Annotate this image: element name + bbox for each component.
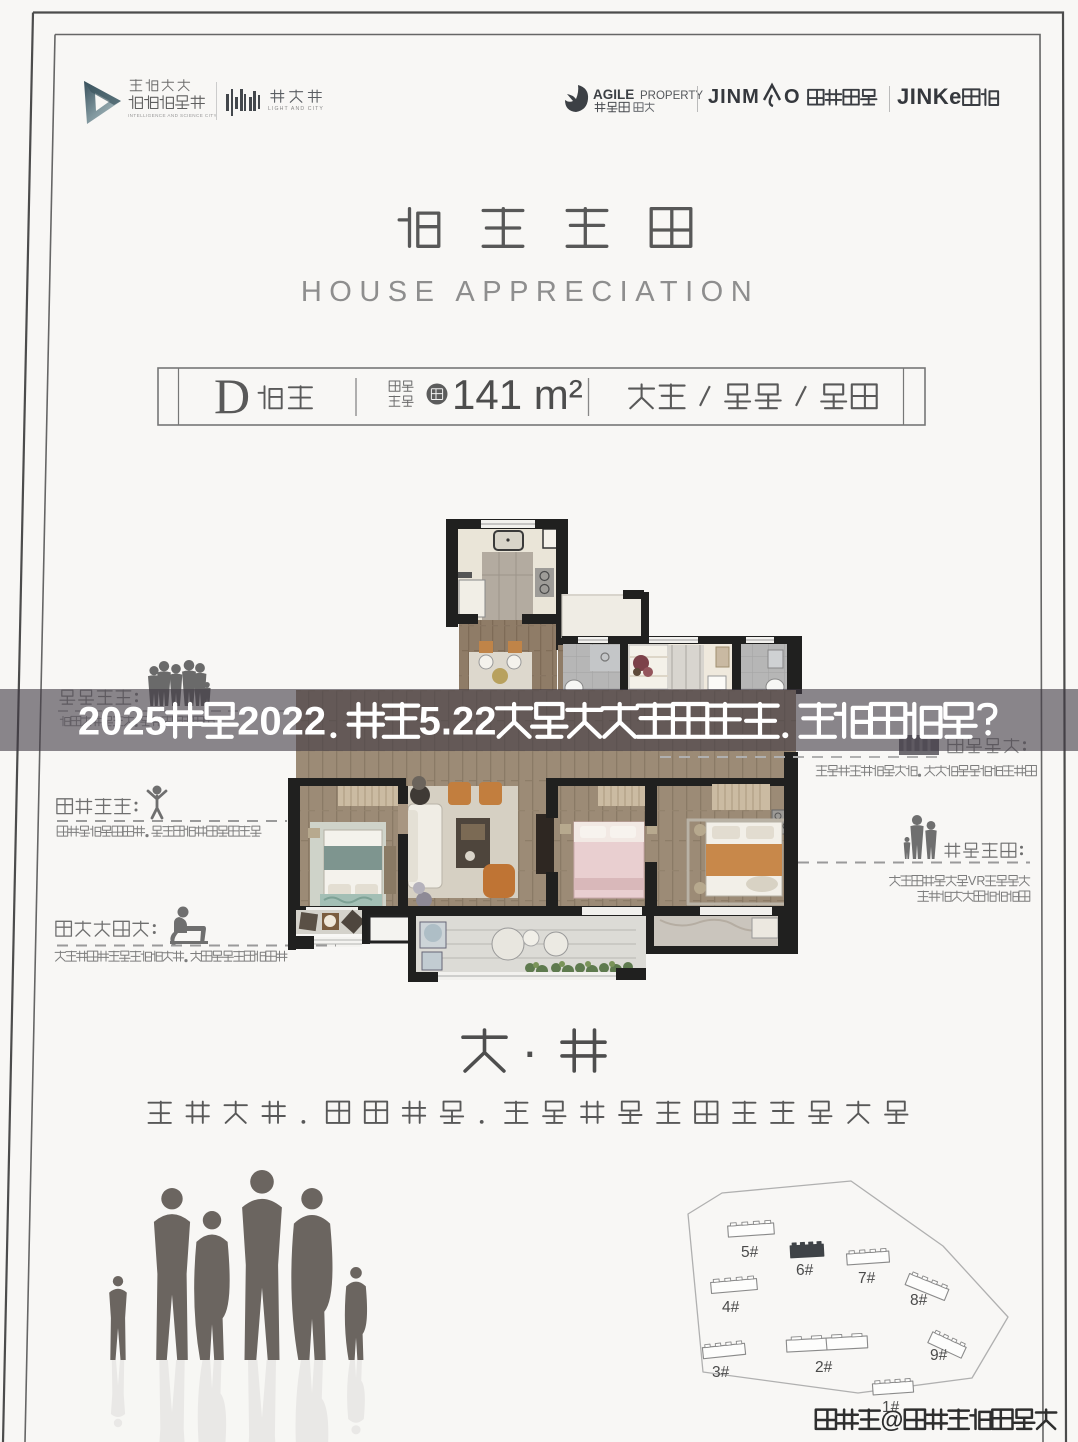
svg-text:141 m²: 141 m²	[452, 371, 583, 418]
svg-text:2025: 2025	[78, 699, 167, 743]
svg-text:D: D	[214, 368, 250, 424]
svg-text:PROPERTY: PROPERTY	[640, 90, 703, 102]
svg-text:7#: 7#	[858, 1270, 876, 1287]
svg-text:INTELLIGENCE AND SCIENCE CITY: INTELLIGENCE AND SCIENCE CITY	[128, 113, 217, 118]
svg-text:5#: 5#	[741, 1244, 759, 1261]
svg-text:@: @	[881, 1407, 904, 1433]
svg-text:5.22: 5.22	[419, 699, 497, 743]
svg-text:O: O	[784, 86, 800, 108]
svg-text:JINM: JINM	[708, 86, 760, 108]
svg-text:JINKe: JINKe	[897, 84, 962, 109]
svg-text:3#: 3#	[712, 1364, 730, 1381]
svg-text:8#: 8#	[910, 1292, 928, 1309]
svg-text:AGILE: AGILE	[593, 87, 634, 102]
svg-text:9#: 9#	[930, 1347, 948, 1364]
svg-text:6#: 6#	[796, 1262, 814, 1279]
svg-text:4#: 4#	[722, 1299, 740, 1316]
svg-text:·: ·	[522, 1023, 539, 1079]
svg-text:2022: 2022	[237, 699, 326, 743]
svg-text:2#: 2#	[815, 1359, 833, 1376]
svg-text:HOUSE APPRECIATION: HOUSE APPRECIATION	[301, 276, 759, 308]
svg-text:LIGHT AND CITY: LIGHT AND CITY	[268, 106, 324, 112]
svg-text:VR: VR	[968, 874, 985, 888]
